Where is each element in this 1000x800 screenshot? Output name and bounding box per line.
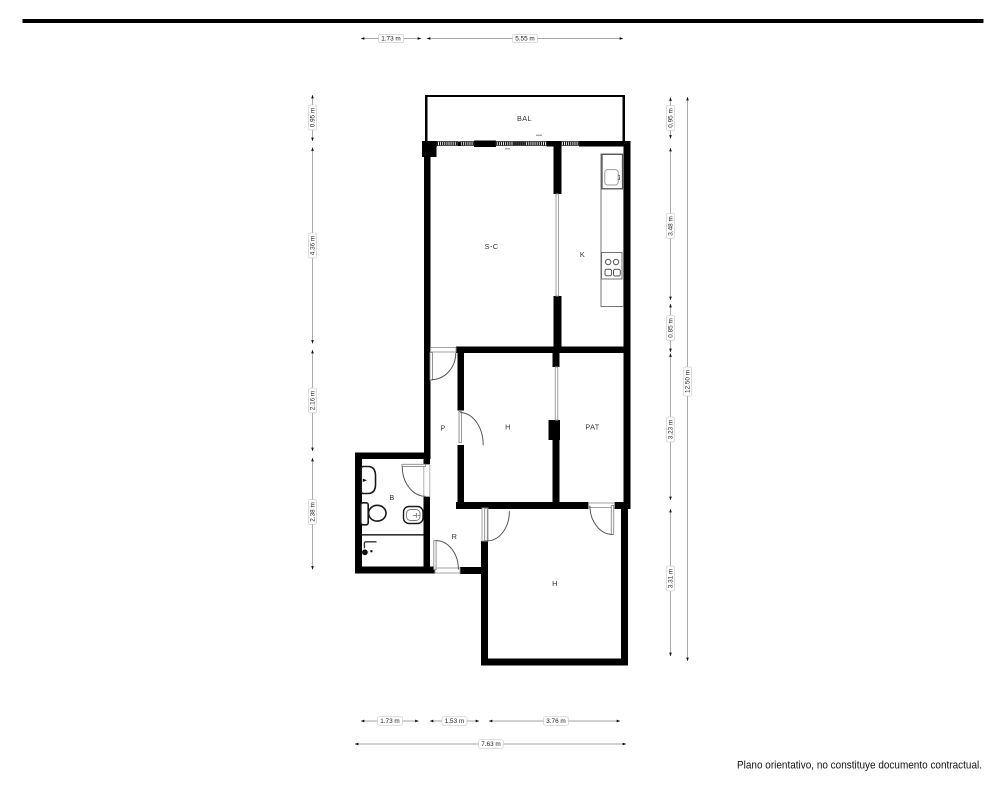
svg-text:0.95 m: 0.95 m <box>310 108 317 128</box>
svg-text:2.16 m: 2.16 m <box>310 391 317 411</box>
svg-text:PAT: PAT <box>585 423 599 432</box>
svg-text:K: K <box>580 250 585 259</box>
svg-text:B: B <box>389 493 394 502</box>
svg-text:H: H <box>552 579 558 588</box>
svg-text:S-C: S-C <box>485 242 499 251</box>
svg-text:7.63 m: 7.63 m <box>481 741 501 748</box>
svg-text:2.38 m: 2.38 m <box>310 502 317 522</box>
svg-text:0.85 m: 0.85 m <box>668 318 675 338</box>
svg-text:H: H <box>505 423 511 432</box>
svg-text:12.50 m: 12.50 m <box>685 370 692 393</box>
svg-text:P: P <box>440 424 445 433</box>
svg-text:3.31 m: 3.31 m <box>668 569 675 589</box>
svg-text:5.55 m: 5.55 m <box>515 36 535 43</box>
svg-text:BAL: BAL <box>517 114 532 123</box>
svg-text:3.76 m: 3.76 m <box>546 718 566 725</box>
svg-text:1.73 m: 1.73 m <box>380 718 400 725</box>
svg-text:R: R <box>452 532 458 541</box>
svg-text:4.36 m: 4.36 m <box>310 236 317 256</box>
svg-text:0.95 m: 0.95 m <box>668 108 675 128</box>
svg-text:Plano orientativo, no constitu: Plano orientativo, no constituye documen… <box>737 760 982 772</box>
svg-text:3.23 m: 3.23 m <box>668 420 675 440</box>
svg-text:3.48 m: 3.48 m <box>668 216 675 236</box>
svg-text:1.73 m: 1.73 m <box>381 36 401 43</box>
svg-text:1.53 m: 1.53 m <box>445 718 465 725</box>
